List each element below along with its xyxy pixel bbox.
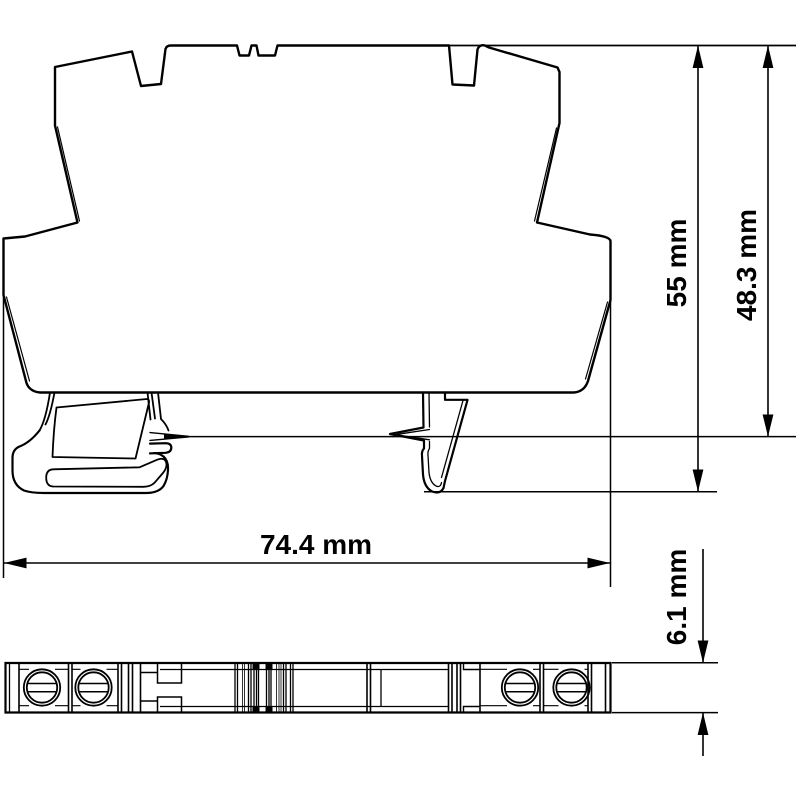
left-foot-slot (46, 459, 166, 487)
middle-recess-lines (160, 670, 448, 707)
left-foot-clip (13, 393, 189, 494)
right-foot-inner-lines (398, 393, 464, 487)
dim-48-arrow-down (763, 415, 774, 437)
left-foot-opening (53, 399, 150, 459)
dim-48-label: 48.3 mm (731, 209, 762, 321)
technical-drawing-page: 55 mm 48.3 mm 74.4 mm (0, 0, 800, 800)
dim-55-arrow-up (693, 46, 704, 69)
body-inner-edge-lines (7, 127, 608, 381)
left-foot-legs (40, 393, 169, 431)
dim-55-arrow-down (693, 470, 704, 492)
screw-terminal-4 (544, 669, 590, 705)
dimension-74mm: 74.4 mm (4, 241, 611, 587)
screw-terminal-1 (19, 669, 69, 705)
dim-74-arrow-right (588, 558, 611, 569)
dim-55-label: 55 mm (661, 219, 692, 308)
interlock-seam (141, 663, 182, 713)
side-view (4, 45, 611, 493)
rib-line-group (235, 663, 293, 713)
dim-74-label: 74.4 mm (260, 529, 372, 560)
dim-6-label: 6.1 mm (661, 549, 692, 646)
dimension-48mm: 48.3 mm (731, 46, 773, 437)
module-body-outline (4, 45, 611, 392)
dim-48-arrow-up (763, 46, 774, 69)
dimension-55mm: 55 mm (661, 46, 703, 492)
dimension-lines: 55 mm 48.3 mm 74.4 mm (4, 46, 797, 588)
dimension-6mm: 6.1 mm (612, 549, 718, 756)
screw-terminal-2 (72, 669, 118, 705)
dimension-drawing: 55 mm 48.3 mm 74.4 mm (0, 0, 800, 800)
right-foot-latch (390, 393, 468, 493)
dim-6-arrow-down (698, 641, 709, 663)
screw-terminals (19, 669, 590, 705)
bottom-view (6, 663, 611, 713)
dim-6-arrow-up (698, 713, 709, 735)
dim-74-arrow-left (4, 558, 27, 569)
screw-terminal-3 (480, 669, 540, 705)
left-foot-outline (13, 431, 172, 494)
edge-step-tabs (464, 663, 481, 713)
seam-steps (141, 663, 182, 713)
